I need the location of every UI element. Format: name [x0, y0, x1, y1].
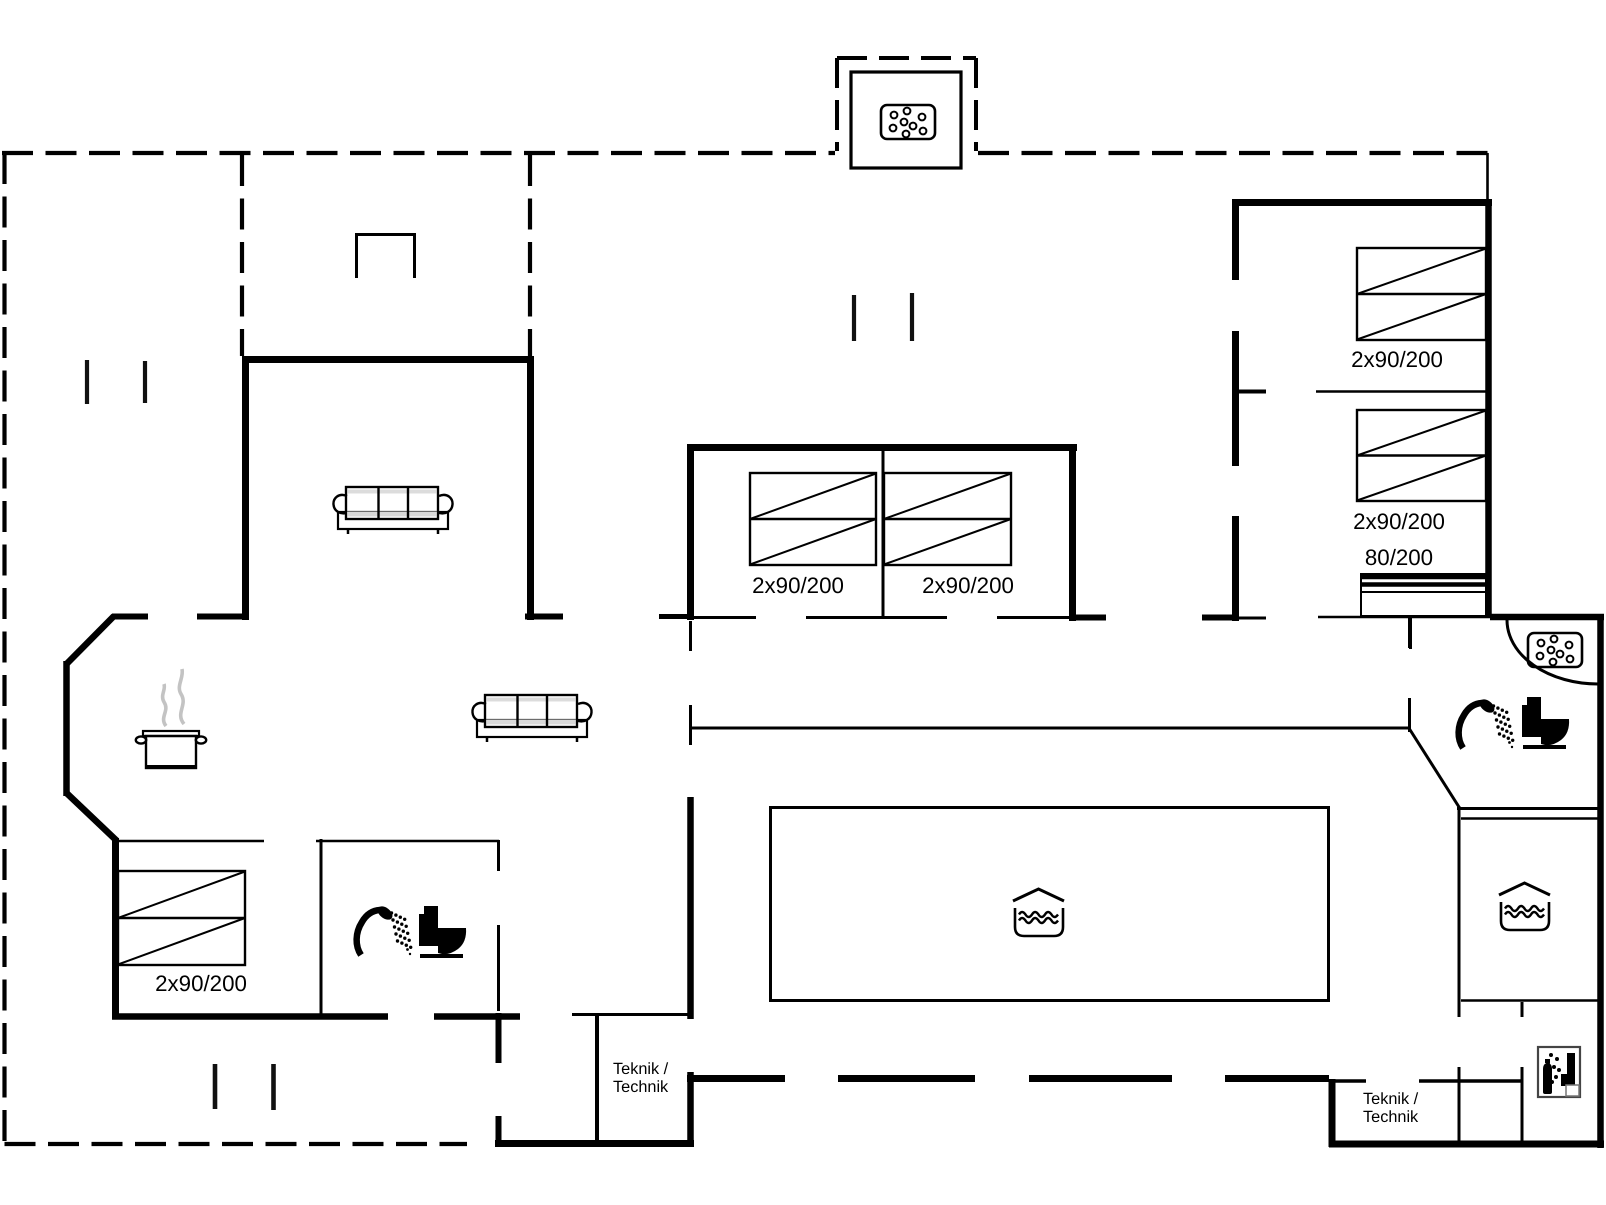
- svg-text:Technik: Technik: [1363, 1108, 1419, 1126]
- svg-text:2x90/200: 2x90/200: [155, 971, 247, 996]
- svg-text:2x90/200: 2x90/200: [752, 573, 844, 598]
- svg-text:2x90/200: 2x90/200: [1351, 347, 1443, 372]
- svg-text:Teknik /: Teknik /: [1363, 1090, 1419, 1108]
- svg-text:Teknik /: Teknik /: [613, 1060, 669, 1078]
- svg-text:80/200: 80/200: [1365, 545, 1433, 570]
- svg-text:2x90/200: 2x90/200: [922, 573, 1014, 598]
- svg-text:2x90/200: 2x90/200: [1353, 509, 1445, 534]
- svg-text:Technik: Technik: [613, 1078, 669, 1096]
